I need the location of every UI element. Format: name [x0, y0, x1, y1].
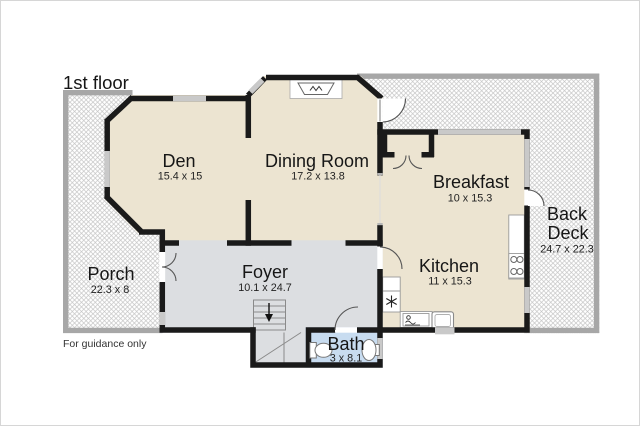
foyer-dims: 10.1 x 24.7	[238, 282, 291, 294]
bath-label: Bath	[327, 334, 364, 354]
fireplace-icon	[290, 80, 342, 99]
stair-bump-floor	[250, 330, 310, 368]
disclaimer: For guidance only	[63, 338, 147, 350]
porch-label: Porch	[87, 264, 134, 284]
window	[160, 312, 165, 325]
back-deck-label-line1: Back	[547, 204, 588, 224]
floor-title: 1st floor	[63, 72, 129, 93]
porch-dims: 22.3 x 8	[91, 284, 129, 296]
dining-room-dims: 17.2 x 13.8	[291, 171, 344, 183]
window	[438, 129, 521, 134]
back-deck-label-line2: Deck	[547, 223, 589, 243]
kitchen-sink-icon	[432, 312, 454, 330]
dining-room-label: Dining Room	[265, 151, 369, 171]
bath-dims: 3 x 8.1	[330, 353, 362, 365]
floor-plan-image: 1st floor For guidance only Den 15.4 x 1…	[0, 0, 640, 426]
window	[524, 287, 529, 313]
window	[524, 139, 529, 187]
den-label: Den	[162, 151, 195, 171]
foyer-label: Foyer	[242, 262, 288, 282]
kitchen-dims: 11 x 15.3	[428, 276, 472, 288]
kitchen-label: Kitchen	[419, 256, 479, 276]
window	[173, 96, 206, 101]
back-deck-dims: 24.7 x 22.3	[540, 244, 593, 256]
breakfast-dims: 10 x 15.3	[448, 193, 492, 205]
breakfast-label: Breakfast	[433, 172, 509, 192]
floor-plan-svg: 1st floor For guidance only Den 15.4 x 1…	[1, 1, 640, 426]
window	[435, 327, 455, 334]
stove-icon	[509, 254, 525, 279]
den-dims: 15.4 x 15	[158, 171, 202, 183]
window	[105, 151, 110, 187]
